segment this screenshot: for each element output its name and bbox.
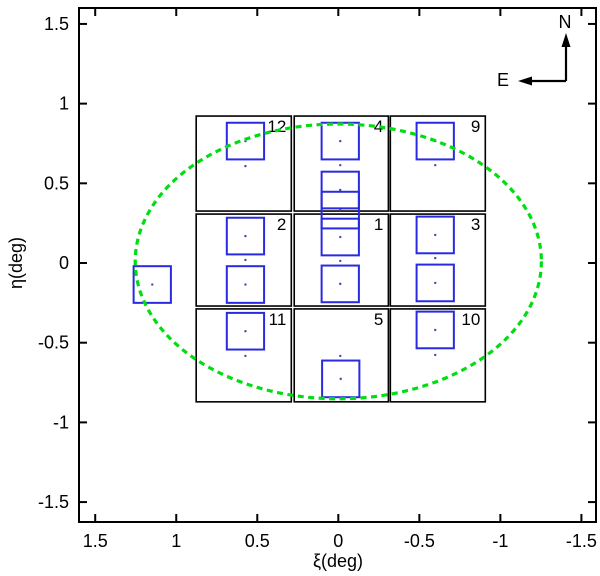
y-tick-label: 1.5 xyxy=(44,14,69,34)
field-label-1: 1 xyxy=(374,215,383,234)
field-label-9: 9 xyxy=(471,117,480,136)
x-tick-label: -0.5 xyxy=(404,531,435,551)
x-tick-label: 0.5 xyxy=(245,531,270,551)
pointing-center-dot xyxy=(244,283,246,285)
field-label-11: 11 xyxy=(269,310,287,329)
pointing-center-dot xyxy=(434,329,436,331)
x-tick-label: 1.5 xyxy=(83,531,108,551)
pointing-center-dot xyxy=(434,282,436,284)
field-center-dot xyxy=(434,257,436,259)
pointing-center-dot xyxy=(339,209,341,211)
x-tick-label: -1 xyxy=(492,531,508,551)
x-axis-title: ξ(deg) xyxy=(288,552,388,570)
pointing-center-dot xyxy=(244,330,246,332)
field-center-dot xyxy=(434,164,436,166)
pointing-center-dot xyxy=(151,283,153,285)
y-tick-label: -0.5 xyxy=(38,333,69,353)
compass-north-arrowhead xyxy=(562,33,571,47)
field-label-5: 5 xyxy=(374,310,383,329)
pointing-center-dot xyxy=(244,235,246,237)
field-center-dot xyxy=(339,355,341,357)
pointing-center-dot xyxy=(340,378,342,380)
field-label-2: 2 xyxy=(277,215,286,234)
x-tick-label: -1.5 xyxy=(566,531,597,551)
field-center-dot xyxy=(244,355,246,357)
y-tick-label: 1 xyxy=(59,94,69,114)
compass-east-arrowhead xyxy=(518,77,532,86)
pointing-center-dot xyxy=(339,236,341,238)
y-tick-label: -1 xyxy=(53,412,69,432)
pointing-center-dot xyxy=(339,140,341,142)
y-tick-label: 0.5 xyxy=(44,173,69,193)
field-center-dot xyxy=(434,354,436,356)
field-center-dot xyxy=(339,260,341,262)
pointing-center-dot xyxy=(434,234,436,236)
x-tick-label: 1 xyxy=(171,531,181,551)
field-center-dot xyxy=(244,259,246,261)
compass-north-label: N xyxy=(555,13,575,31)
field-label-10: 10 xyxy=(461,310,480,329)
x-tick-label: 0 xyxy=(333,531,343,551)
y-tick-label: -1.5 xyxy=(38,492,69,512)
field-label-3: 3 xyxy=(471,215,480,234)
pointing-center-dot xyxy=(339,283,341,285)
y-axis-title: η(deg) xyxy=(7,234,25,292)
y-tick-label: 0 xyxy=(59,253,69,273)
field-center-dot xyxy=(339,164,341,166)
field-center-dot xyxy=(244,165,246,167)
compass-east-label: E xyxy=(493,71,513,89)
figure-canvas: 1249213115101.510.50-0.5-1-1.51.510.50-0… xyxy=(0,0,600,576)
